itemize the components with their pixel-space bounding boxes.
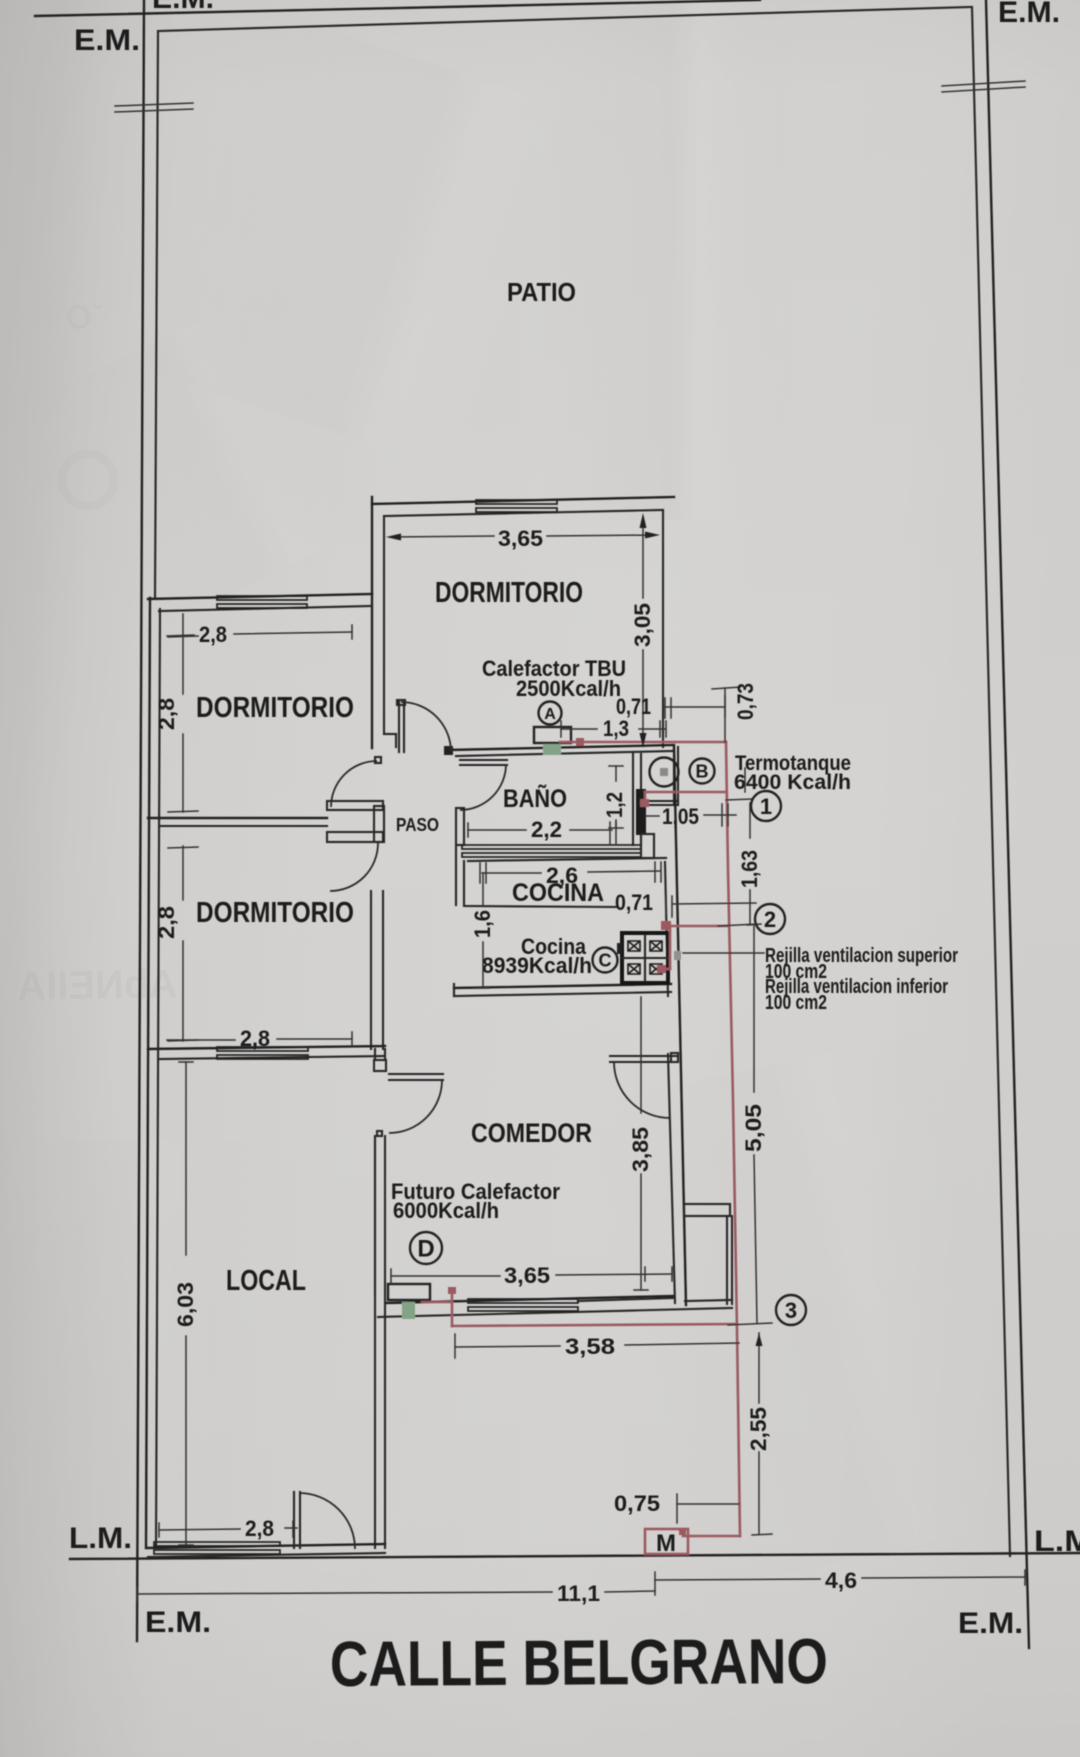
svg-text:2,55: 2,55 <box>746 1407 771 1451</box>
svg-text:B: B <box>696 761 709 781</box>
svg-text:COMEDOR: COMEDOR <box>471 1118 592 1148</box>
svg-text:2,8: 2,8 <box>154 906 179 939</box>
svg-text:2,2: 2,2 <box>531 817 562 842</box>
svg-text:3,85: 3,85 <box>628 1127 653 1172</box>
svg-text:1,05: 1,05 <box>662 804 699 829</box>
svg-text:11,1: 11,1 <box>557 1581 600 1606</box>
svg-text:5,05: 5,05 <box>741 1104 766 1152</box>
svg-text:E.M.: E.M. <box>998 0 1060 29</box>
svg-text:2,8: 2,8 <box>154 698 179 730</box>
svg-text:CALLE BELGRANO: CALLE BELGRANO <box>330 1625 828 1700</box>
svg-text:3,65: 3,65 <box>498 526 543 551</box>
svg-text:1,6: 1,6 <box>470 910 495 938</box>
svg-text:2,8: 2,8 <box>240 1026 270 1051</box>
svg-text:PATIO: PATIO <box>507 277 576 307</box>
svg-text:E.M.: E.M. <box>958 1607 1023 1640</box>
svg-text:M: M <box>656 1530 676 1557</box>
svg-text:6,03: 6,03 <box>173 1282 198 1327</box>
svg-text:0,75: 0,75 <box>614 1491 660 1516</box>
svg-text:2500Kcal/h: 2500Kcal/h <box>516 676 621 701</box>
svg-text:0,73: 0,73 <box>733 683 758 720</box>
svg-text:100 cm2: 100 cm2 <box>765 992 827 1014</box>
svg-text:2,8: 2,8 <box>199 622 227 647</box>
svg-text:BAÑO: BAÑO <box>503 783 567 813</box>
svg-text:D: D <box>417 1236 434 1263</box>
svg-text:DORMITORIO: DORMITORIO <box>196 692 354 724</box>
svg-text:2: 2 <box>764 907 776 932</box>
svg-text:3,65: 3,65 <box>504 1263 550 1288</box>
svg-text:DORMITORIO: DORMITORIO <box>196 897 354 929</box>
svg-text:2,6: 2,6 <box>546 863 578 888</box>
svg-text:1,3: 1,3 <box>603 716 629 741</box>
svg-text:E.M.: E.M. <box>152 0 214 15</box>
svg-text:1: 1 <box>760 794 772 819</box>
svg-text:C: C <box>599 950 612 970</box>
svg-text:L.M.: L.M. <box>1034 1525 1080 1558</box>
svg-text:E.M.: E.M. <box>145 1606 211 1639</box>
svg-text:3: 3 <box>785 1298 797 1323</box>
svg-text:6000Kcal/h: 6000Kcal/h <box>393 1198 499 1223</box>
svg-text:0,71: 0,71 <box>615 890 653 915</box>
svg-text:1,2: 1,2 <box>602 792 627 818</box>
svg-text:2,8: 2,8 <box>245 1516 274 1541</box>
svg-text:4,6: 4,6 <box>825 1568 857 1593</box>
svg-text:LOCAL: LOCAL <box>226 1265 306 1297</box>
svg-text:1,63: 1,63 <box>737 850 762 888</box>
svg-text:3,05: 3,05 <box>630 603 655 647</box>
svg-text:6400 Kcal/h: 6400 Kcal/h <box>734 771 851 794</box>
svg-text:3,58: 3,58 <box>565 1334 615 1359</box>
svg-text:8939Kcal/h: 8939Kcal/h <box>482 953 592 978</box>
svg-text:A: A <box>544 706 556 723</box>
svg-text:L.M.: L.M. <box>69 1522 132 1555</box>
svg-text:E.M.: E.M. <box>74 24 140 57</box>
svg-text:DORMITORIO: DORMITORIO <box>435 577 583 609</box>
svg-text:PASO: PASO <box>396 815 439 835</box>
